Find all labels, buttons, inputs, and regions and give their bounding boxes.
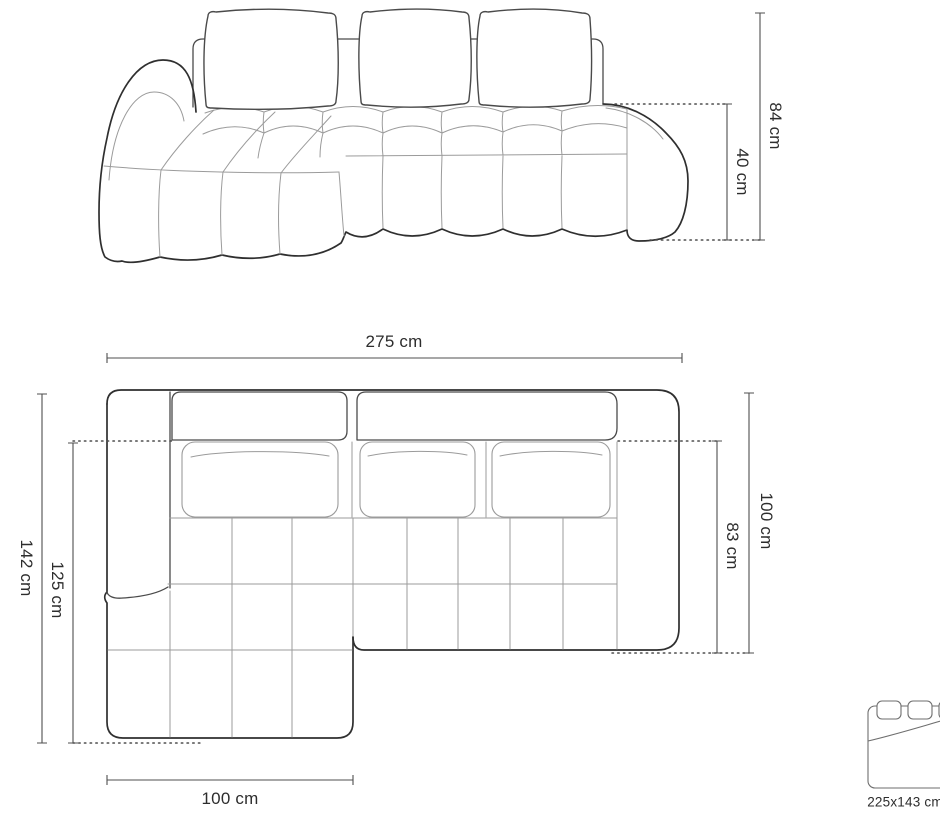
front-view-drawing bbox=[99, 9, 688, 262]
plan-left-arm-seam bbox=[107, 392, 170, 598]
chaise-top-seams bbox=[161, 110, 331, 173]
plan-backrest-right bbox=[357, 392, 617, 440]
dim-line-seat-height bbox=[722, 104, 732, 240]
seat-front-columns bbox=[382, 109, 627, 229]
left-arm-inner-seam bbox=[109, 92, 184, 180]
dim-line-seat-depth bbox=[712, 441, 722, 653]
dim-label-width-total: 275 cm bbox=[366, 332, 423, 352]
tuft-seams-upper bbox=[263, 111, 562, 133]
tuft-seams-lower bbox=[258, 131, 562, 158]
bed-fold-line bbox=[868, 717, 940, 741]
top-view-drawing bbox=[105, 390, 679, 738]
dimension-diagram: 84 cm 40 cm 275 cm 142 cm 125 cm 100 cm … bbox=[0, 0, 940, 820]
bed-pillow-2 bbox=[908, 701, 932, 719]
dim-label-depth-total: 142 cm bbox=[16, 540, 36, 597]
back-pillow-1 bbox=[204, 9, 338, 109]
sleeping-area-label: 225x143 cm bbox=[867, 795, 940, 810]
chaise-front-columns bbox=[159, 170, 344, 257]
chaise-waist-sweep bbox=[104, 166, 339, 173]
dim-label-chaise-width: 100 cm bbox=[202, 789, 259, 809]
plan-seat-cushion-1 bbox=[182, 442, 338, 517]
dim-line-width-total bbox=[107, 353, 682, 363]
bed-pillow-1 bbox=[877, 701, 901, 719]
dim-label-seat-depth: 83 cm bbox=[722, 522, 742, 569]
dim-label-depth-chaise: 125 cm bbox=[47, 562, 67, 619]
dim-line-height-total bbox=[755, 13, 765, 240]
seat-top-row-2 bbox=[203, 124, 627, 134]
dim-label-height-total: 84 cm bbox=[765, 102, 785, 149]
bed-icon bbox=[868, 701, 940, 788]
back-pillow-2 bbox=[359, 9, 471, 107]
diagram-canvas bbox=[0, 0, 940, 820]
seat-waist-line bbox=[346, 154, 627, 156]
dim-line-depth-total bbox=[37, 394, 47, 743]
dim-line-depth-chaise bbox=[68, 443, 78, 743]
back-pillow-3 bbox=[477, 9, 592, 107]
dim-line-chaise-width bbox=[107, 775, 353, 785]
dim-label-seat-height: 40 cm bbox=[732, 148, 752, 195]
dim-line-depth-right bbox=[744, 393, 754, 653]
dim-label-depth-right: 100 cm bbox=[756, 493, 776, 550]
plan-backrest-left bbox=[172, 392, 347, 440]
